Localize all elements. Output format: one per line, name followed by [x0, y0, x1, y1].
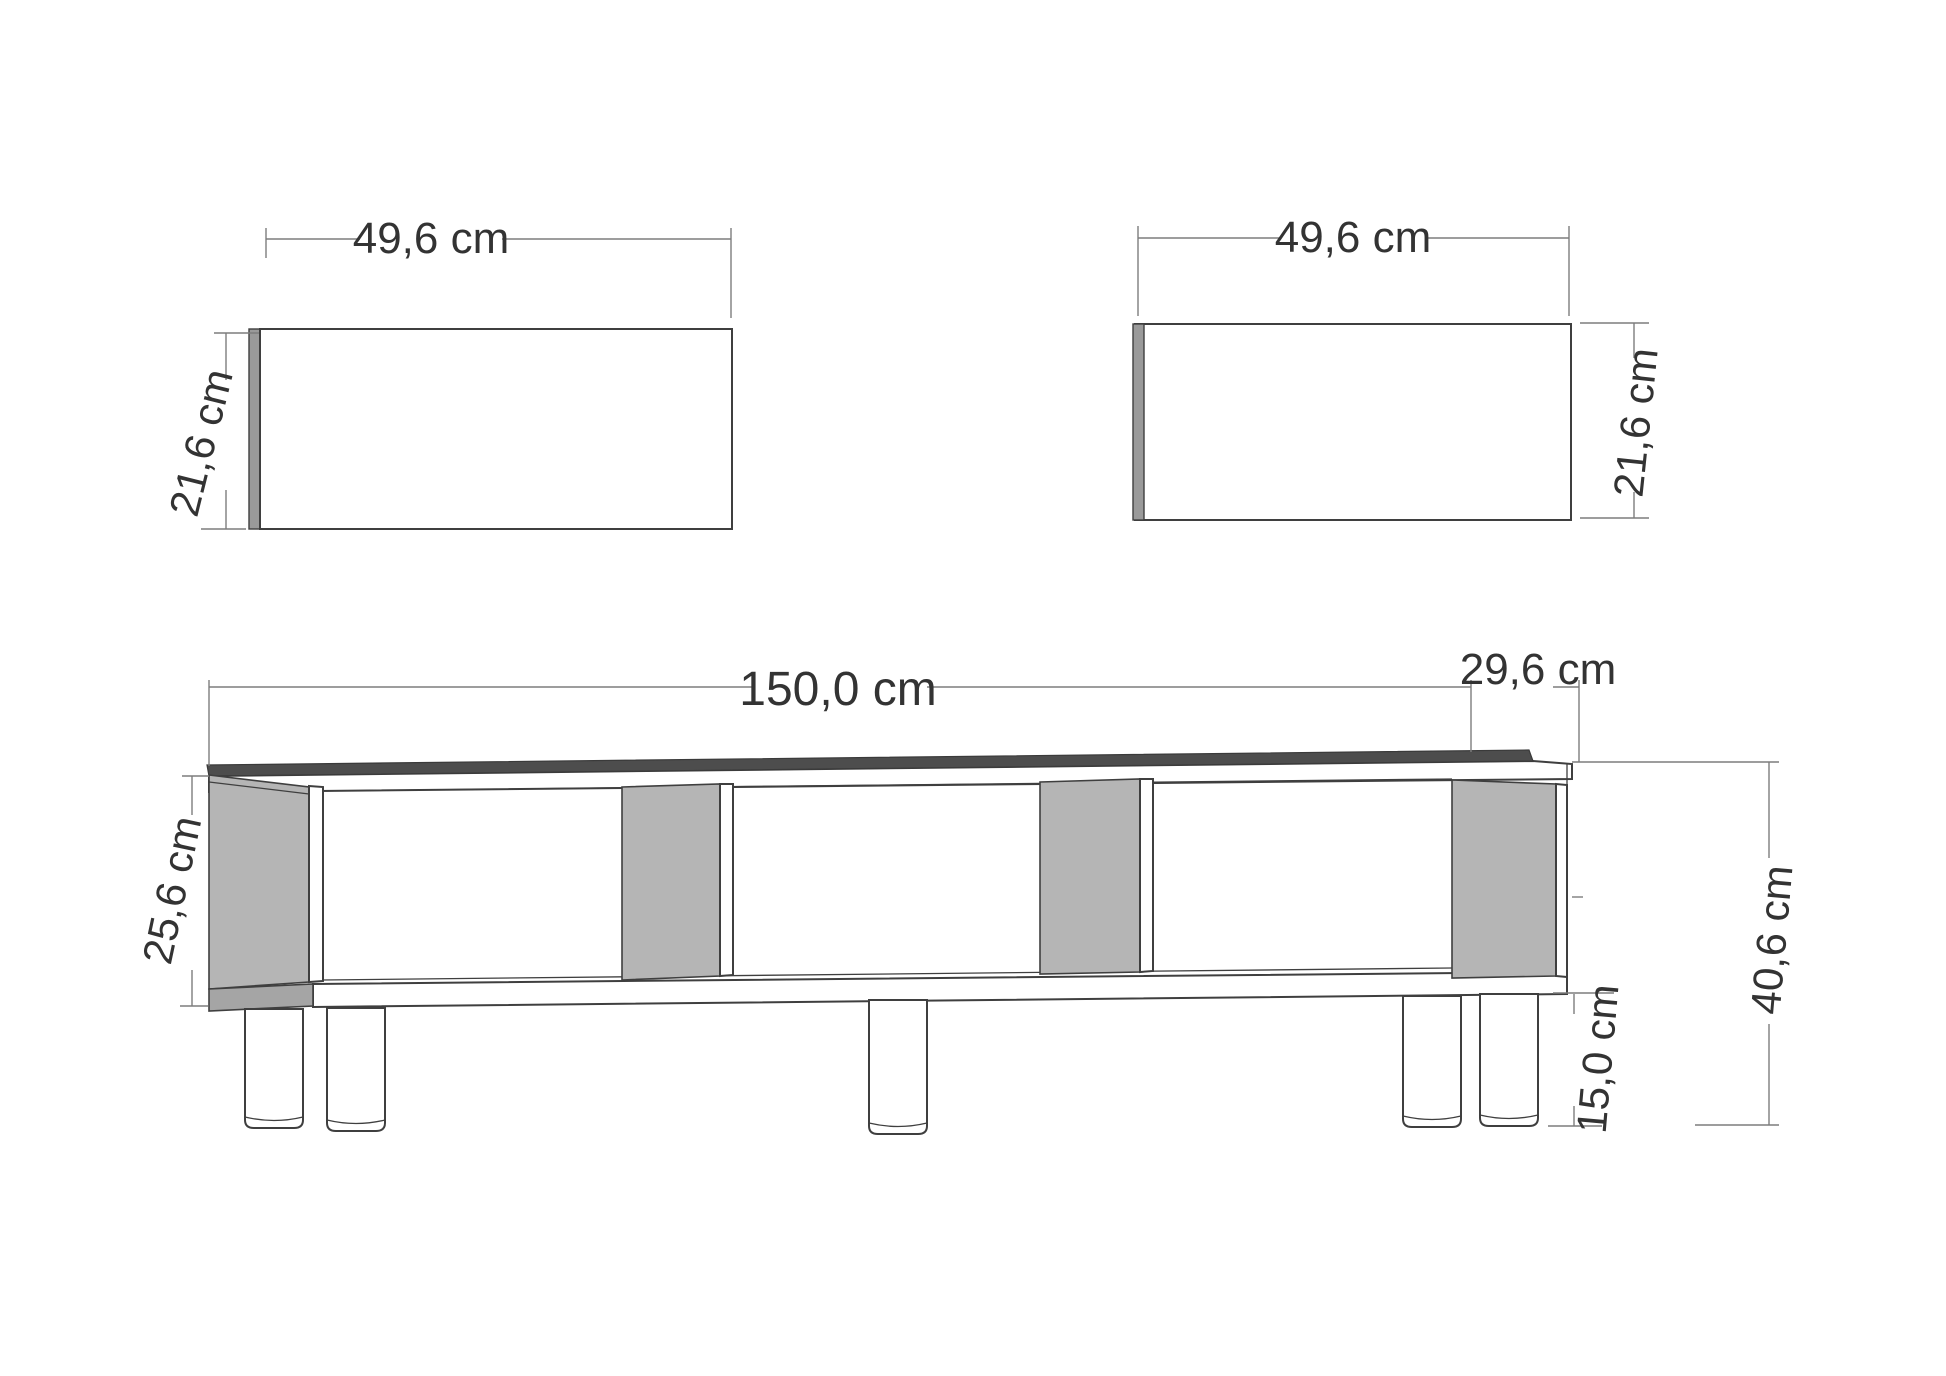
leg-3: [869, 1000, 927, 1134]
right-panel-width-label: 49,6 cm: [1275, 213, 1432, 262]
right-panel-height-label: 21,6 cm: [1604, 346, 1666, 500]
left-side-bottom-lip: [209, 984, 313, 1011]
stand-depth-label: 29,6 cm: [1460, 645, 1617, 694]
stand-right-side-panel: [1452, 763, 1567, 978]
left-panel-height-dimension: 21,6 cm: [160, 333, 259, 529]
left-side-front-strip: [309, 786, 323, 982]
stand-bottom-shelf: [313, 972, 1567, 1007]
leg-2: [327, 1008, 385, 1131]
stand-width-label: 150,0 cm: [739, 663, 936, 716]
divider-1-face: [622, 784, 720, 980]
leg-4: [1403, 996, 1461, 1127]
technical-drawing-canvas: 49,6 cm 21,6 cm 49,6 cm 21,6 cm: [0, 0, 1946, 1376]
left-panel-width-label: 49,6 cm: [353, 214, 510, 263]
left-side-face: [209, 775, 309, 989]
left-panel-height-label: 21,6 cm: [160, 364, 242, 520]
left-panel-edge-strip: [249, 329, 260, 529]
right-panel-face: [1135, 324, 1571, 520]
stand-top-panel: [207, 750, 1572, 792]
tv-stand-view: 150,0 cm 29,6 cm 25,6 cm 15,0 cm 40,6 cm: [133, 645, 1801, 1135]
divider-1-front-strip: [720, 784, 733, 976]
shelf-panel-view-left: 49,6 cm 21,6 cm: [160, 214, 732, 529]
shelf-panel-view-right: 49,6 cm 21,6 cm: [1133, 213, 1667, 520]
left-panel-width-dimension: 49,6 cm: [266, 214, 731, 318]
stand-width-dimension: 150,0 cm: [209, 663, 1579, 766]
right-side-front-strip: [1556, 784, 1567, 977]
leg-1: [245, 1009, 303, 1128]
stand-overall-height-label: 40,6 cm: [1742, 863, 1802, 1016]
stand-leg-height-dimension: 15,0 cm: [1548, 982, 1627, 1135]
stand-left-side-panel: [209, 775, 323, 1011]
left-panel-face: [260, 329, 732, 529]
stand-legs: [245, 994, 1538, 1134]
divider-2-face: [1040, 779, 1140, 974]
stand-depth-dimension: 29,6 cm: [1460, 645, 1617, 762]
right-panel-width-dimension: 49,6 cm: [1138, 213, 1569, 316]
stand-divider-1: [622, 784, 733, 980]
leg-5: [1480, 994, 1538, 1126]
stand-body-height-label: 25,6 cm: [133, 812, 210, 968]
stand-body-height-dimension: 25,6 cm: [133, 776, 210, 1006]
right-panel-height-dimension: 21,6 cm: [1580, 323, 1667, 518]
drawing-page: 49,6 cm 21,6 cm 49,6 cm 21,6 cm: [0, 0, 1946, 1376]
stand-divider-2: [1040, 779, 1153, 974]
stand-leg-height-label: 15,0 cm: [1568, 982, 1628, 1135]
divider-2-front-strip: [1140, 779, 1153, 972]
right-side-face: [1452, 780, 1556, 978]
right-panel-edge-strip: [1133, 324, 1144, 520]
